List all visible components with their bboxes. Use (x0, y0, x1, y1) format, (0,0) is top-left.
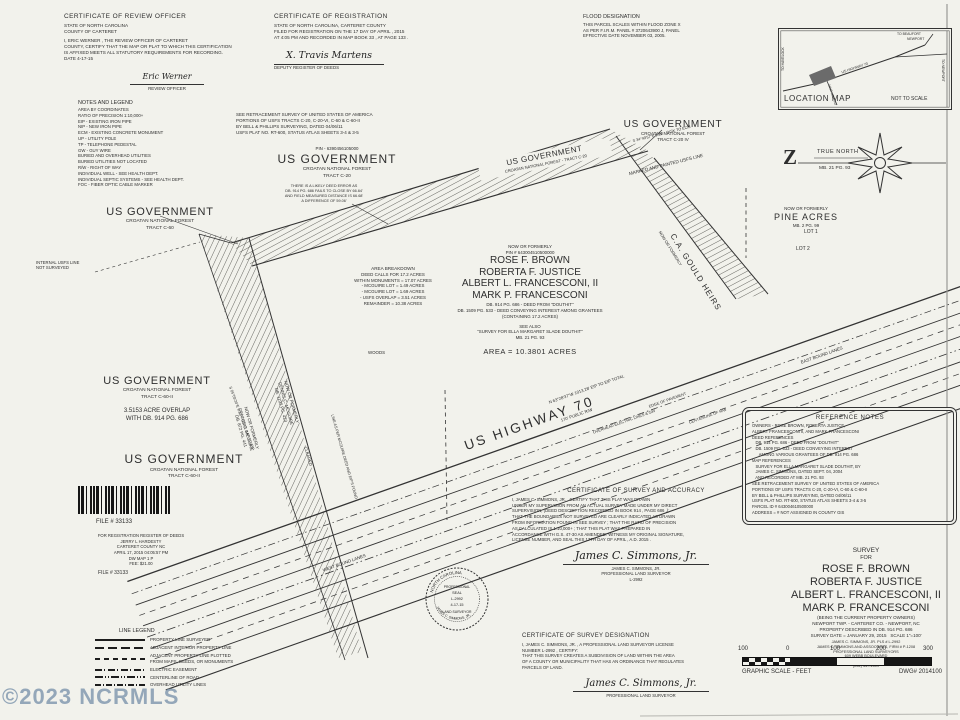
area-breakdown: AREA BREAKDOWN DEED CALLS FOR 17.2 ACRES… (328, 266, 458, 306)
accuracy-cert-body: I, JAMES C. SIMMONS, JR. , CERTIFY THAT … (512, 497, 760, 543)
deed-error-note: THERE IS A LIKELY DEED ERROR ASDB. 914 P… (258, 184, 390, 204)
title-date-scale: SURVEY DATE = JANUARY 29, 2015 SCALE 1"=… (780, 633, 952, 639)
flood-designation-note: FLOOD DESIGNATION THIS PARCEL SCALES WIT… (583, 14, 753, 39)
legend-row-surveyed: PROPERTY LINE SURVEYED (95, 637, 285, 643)
reference-notes-lines: OWNERS - ROSE BROWN, ROBERTA JUSTICE,ALB… (752, 423, 948, 516)
scale-bar-checker (743, 658, 790, 665)
tract-c60ii-b-tract: TRACT C-60-II (96, 474, 272, 480)
reference-notes-box: REFERENCE NOTES OWNERS - ROSE BROWN, ROB… (745, 410, 954, 522)
legend-label: ADJACENT INTERIOR PROPERTY LINE (150, 645, 232, 651)
dwg-number: DWG# 2014100 (899, 669, 942, 675)
deed-error-lines: THERE IS A LIKELY DEED ERROR ASDB. 914 P… (258, 184, 390, 204)
review-certificate: CERTIFICATE OF REVIEW OFFICER STATE OF N… (64, 13, 270, 92)
parcel-area: AREA = 10.3801 ACRES (425, 347, 635, 357)
scale-tick-0: 0 (786, 646, 789, 652)
flood-lines: THIS PARCEL SCALES WITHIN FLOOD ZONE XAS… (583, 22, 753, 39)
tract-c60-name: US GOVERNMENT (80, 205, 240, 219)
seal-professional: PROFESSIONAL (444, 585, 470, 589)
scale-caption: GRAPHIC SCALE - FEET (742, 669, 811, 675)
line-legend-title: LINE LEGEND (119, 628, 285, 635)
seal-date: 4-17-15 (450, 603, 463, 607)
notes-and-legend: NOTES AND LEGEND AREA BY COORDINATESRATI… (78, 100, 248, 188)
tract-c20-tract: TRACT C-20 (262, 174, 412, 180)
tract-c20iv-tract: TRACT C-20 IV (598, 137, 748, 143)
survey-plat-page: CERTIFICATE OF REVIEW OFFICER STATE OF N… (0, 0, 960, 720)
legend-label: PROPERTY LINE SURVEYED (150, 637, 210, 643)
review-cert-state-lines: STATE OF NORTH CAROLINACOUNTY OF CARTERE… (64, 23, 270, 35)
surveyor-license: L-2992 (512, 577, 760, 582)
tract-c20: PIN - 6390456105000 US GOVERNMENT CROATA… (262, 146, 412, 180)
lot2-label: LOT 2 (796, 246, 810, 253)
accuracy-certificate: CERTIFICATE OF SURVEY AND ACCURACY I, JA… (512, 488, 760, 582)
dash-dot-line-sample (95, 669, 145, 671)
location-map-to-havelock: TO HAVELOCK (781, 47, 785, 71)
location-map-title: LOCATION MAP (784, 94, 851, 104)
seal-seal: SEAL (452, 591, 462, 595)
long-dash-line-sample (95, 647, 145, 649)
location-map: TO HAVELOCK TO BEAUFORT NEWPORT TO NEWPO… (778, 28, 952, 110)
pine-acres-name: PINE ACRES (750, 212, 862, 224)
tract-c60ii-a-tract: TRACT C-60-II (76, 395, 238, 401)
seal-land-surveyor: LAND SURVEYOR (443, 610, 473, 614)
seal-license: L-2992 (451, 597, 463, 601)
lot1-label: LOT 1 (804, 229, 818, 236)
pine-acres-label: NOW OR FORMERLY PINE ACRES MB. 2 PG. 99 (750, 206, 862, 229)
review-cert-body: I, ERIC WERNER , THE REVIEW OFFICER OF C… (64, 38, 270, 62)
solid-line-sample (95, 639, 145, 641)
tract-c20-name: US GOVERNMENT (262, 152, 412, 168)
designation-certificate: CERTIFICATE OF SURVEY DESIGNATION I, JAM… (522, 633, 760, 698)
accuracy-cert-title: CERTIFICATE OF SURVEY AND ACCURACY (512, 488, 760, 496)
true-north-label: TRUE NORTH (817, 149, 859, 156)
barcode (78, 486, 170, 514)
tract-c60-tract: TRACT C-60 (80, 226, 240, 232)
location-map-newport: NEWPORT (907, 37, 924, 41)
title-owner-names: ROSE F. BROWNROBERTA F. JUSTICEALBERT L.… (780, 563, 952, 616)
legend-row-adjacent-interior: ADJACENT INTERIOR PROPERTY LINE (95, 645, 285, 651)
flood-title: FLOOD DESIGNATION (583, 14, 753, 21)
tract-c60ii-overlap: US GOVERNMENT CROATAN NATIONAL FOREST TR… (76, 374, 238, 423)
legend-row-electric: ELECTRIC EASEMENT (95, 667, 285, 673)
scale-ticks: 100 0 100 200 300 (742, 646, 942, 654)
scale-tick-100: 100 (830, 646, 840, 652)
designation-cert-signature: James C. Simmons, Jr. (573, 677, 708, 692)
legend-label: ELECTRIC EASEMENT (150, 667, 197, 673)
recording-stamp-lines: FOR REGISTRATION REGISTER OF DEEDSJERRY … (66, 533, 216, 567)
owner-see-also: SEE ALSO"SURVEY FOR ELLA MARGARET SLADE … (425, 324, 635, 341)
designation-cert-body: I, JAMES C. SIMMONS, JR. , A PROFESSIONA… (522, 642, 760, 671)
internal-usfs-label: INTERNAL USFS LINENOT SURVEYED (36, 260, 106, 271)
registration-certificate: CERTIFICATE OF REGISTRATION STATE OF NOR… (274, 13, 502, 71)
location-map-to-beaufort: TO BEAUFORT (897, 32, 921, 36)
review-officer-label: REVIEW OFFICER (64, 86, 270, 92)
scale-tick-100l: 100 (738, 646, 748, 652)
legend-row-adjacent-plotted: ADJACENT PROPERTY LINE PLOTTED FROM MAPS… (95, 653, 285, 664)
designation-cert-title: CERTIFICATE OF SURVEY DESIGNATION (522, 633, 760, 641)
north-letter: Z (783, 144, 797, 171)
graphic-scale: 100 0 100 200 300 GRAPHIC SCALE - FEET D… (742, 646, 942, 675)
tract-c60ii-overlap-line1: 3.5153 ACRE OVERLAP (76, 408, 238, 416)
dash-line-sample (95, 658, 145, 660)
true-north-ref: MB. 21 PG. 93 (819, 166, 850, 172)
register-of-deeds-signature: X. Travis Martens (274, 50, 384, 64)
tract-c60ii-overlap-line2: WITH DB. 914 PG. 686 (76, 416, 238, 424)
legend-row-centerline: CENTERLINE OF ROAD (95, 675, 285, 681)
scale-bar-black2 (884, 658, 931, 665)
ncrmls-watermark: ©2023 NCRMLS (2, 684, 179, 710)
location-map-to-newport: TO NEWPORT (941, 59, 945, 82)
review-cert-title: CERTIFICATE OF REVIEW OFFICER (64, 13, 270, 21)
tract-c60ii: US GOVERNMENT CROATAN NATIONAL FOREST TR… (96, 452, 272, 480)
registration-cert-title: CERTIFICATE OF REGISTRATION (274, 13, 502, 21)
reference-notes-title: REFERENCE NOTES (752, 415, 948, 421)
dash-dot-dot-line-sample (95, 676, 145, 678)
usfs-retracement-note: SEE RETRACEMENT SURVEY OF UNITED STATES … (236, 112, 416, 135)
title-sub-lines: (BEING THE CURRENT PROPERTY OWNERS)NEWPO… (780, 615, 952, 633)
notes-legend-title: NOTES AND LEGEND (78, 100, 248, 107)
line-legend: LINE LEGEND PROPERTY LINE SURVEYED ADJAC… (95, 628, 285, 688)
designation-cert-role: PROFESSIONAL LAND SURVEYOR (522, 693, 760, 698)
register-of-deeds-label: DEPUTY REGISTER OF DEEDS (274, 65, 502, 71)
scale-bar-white (837, 658, 884, 665)
title-survey-date: SURVEY DATE = JANUARY 29, 2015 (811, 633, 887, 638)
tract-c60ii-b-name: US GOVERNMENT (96, 452, 272, 468)
scale-tick-300: 300 (923, 646, 933, 652)
tract-c60: US GOVERNMENT CROATAN NATIONAL FOREST TR… (80, 205, 240, 232)
legend-label: ADJACENT PROPERTY LINE PLOTTED (150, 653, 231, 658)
usfs-note-lines: SEE RETRACEMENT SURVEY OF UNITED STATES … (236, 112, 416, 135)
registration-cert-body: STATE OF NORTH CAROLINA, CARTERET COUNTY… (274, 23, 502, 41)
review-officer-signature: Eric Werner (130, 72, 203, 84)
tract-c60ii-a-name: US GOVERNMENT (76, 374, 238, 388)
scale-tick-200: 200 (876, 646, 886, 652)
notes-legend-lines: AREA BY COORDINATESRATIO OF PRECISION 1:… (78, 107, 248, 188)
svg-text:NORTH CAROLINA: NORTH CAROLINA (429, 570, 462, 593)
location-map-site (809, 66, 836, 86)
compass-star (848, 133, 912, 193)
scale-bar (742, 657, 932, 666)
legend-label-2: FROM MAPS, DEEDS, OR MONUMENTS (150, 659, 233, 664)
scale-bar-black1 (790, 658, 837, 665)
surveyor-seal: NORTH CAROLINA JAMES C. SIMMONS, JR. PRO… (424, 566, 490, 632)
accuracy-cert-signature: James C. Simmons, Jr. (563, 549, 709, 565)
title-survey: SURVEY (780, 547, 952, 555)
title-for: FOR (780, 555, 952, 562)
legend-label: CENTERLINE OF ROAD (150, 675, 199, 681)
area-breakdown-lines: DEED CALLS FOR 17.2 ACRESWITHIN MONUMENT… (328, 272, 458, 306)
file-number-2: FILE # 33133 (98, 570, 128, 577)
title-scale: SCALE 1"=100' (890, 633, 921, 638)
seal-state: NORTH CAROLINA (429, 570, 462, 593)
file-number: FILE # 33133 (96, 519, 132, 527)
location-map-scale: NOT TO SCALE (891, 96, 927, 103)
woods-label: WOODS (368, 350, 385, 356)
